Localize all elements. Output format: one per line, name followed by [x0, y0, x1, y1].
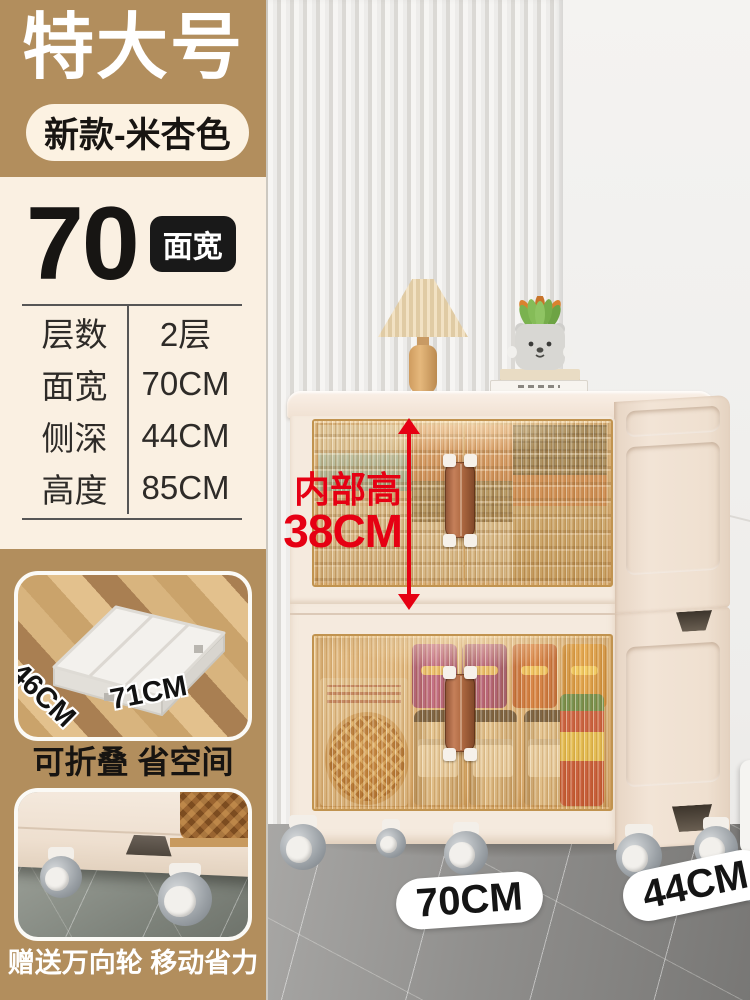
side-recess	[626, 642, 720, 788]
wheel-cap	[164, 886, 195, 917]
width-unit-badge: 面宽	[150, 216, 236, 272]
table-row: 侧深 44CM	[22, 410, 242, 462]
handle-clip	[464, 748, 477, 761]
bear-pot	[507, 323, 573, 370]
cabinet-side-lower	[614, 607, 730, 850]
product-photo: 内部高 38CM 70CM 44CM	[266, 0, 750, 1000]
box-seam	[290, 613, 615, 615]
wood-shelf-edge	[170, 838, 252, 847]
lamp-base	[409, 345, 437, 395]
spec-table: 层数 2层 面宽 70CM 侧深 44CM 高度 85CM	[22, 304, 242, 520]
wheel-cap	[286, 836, 313, 863]
caster-wheel	[280, 824, 326, 870]
width-value: 70	[26, 187, 138, 301]
bear-planter	[504, 296, 576, 374]
table-row: 面宽 70CM	[22, 358, 242, 410]
wheels-photo	[14, 788, 252, 941]
wicker-basket	[180, 788, 252, 840]
cabinet-side-upper	[614, 395, 730, 614]
handle-clip	[464, 454, 477, 467]
spec-label: 高度	[22, 462, 127, 514]
handle-clip	[443, 666, 456, 679]
handle-clip	[443, 454, 456, 467]
caster-wheel	[158, 872, 212, 926]
lamp-shade	[378, 279, 468, 337]
spec-value: 70CM	[127, 358, 242, 410]
inner-height-label: 内部高	[268, 472, 402, 508]
side-handle-notch	[676, 610, 712, 632]
caster-wheel	[444, 831, 488, 875]
width-dimension-pill: 70CM	[394, 870, 544, 931]
wheel-cap	[449, 842, 475, 868]
spec-label: 侧深	[22, 410, 127, 462]
handle-clip	[443, 534, 456, 547]
door-handle-lower	[445, 674, 475, 752]
side-recess	[626, 406, 720, 438]
feature-block: 46CM 71CM 可折叠 省空间 赠送万向轮 移动省力	[0, 549, 266, 1000]
spec-block: 70 面宽 层数 2层 面宽 70CM 侧深 44CM 高度 85CM	[0, 177, 266, 549]
spec-value: 2层	[127, 306, 242, 358]
arrow-down-icon	[398, 594, 420, 610]
handle-clip	[464, 666, 477, 679]
handle-clip	[443, 748, 456, 761]
spec-label: 面宽	[22, 358, 127, 410]
door-handle-upper	[445, 462, 475, 538]
table-row: 层数 2层	[22, 306, 242, 358]
handle-clip	[464, 534, 477, 547]
width-headline: 70 面宽	[26, 187, 236, 301]
table-row: 高度 85CM	[22, 462, 242, 514]
inner-height-annotation: 内部高 38CM	[268, 472, 402, 554]
background-object	[740, 760, 750, 854]
wheel-cap	[622, 845, 649, 872]
variant-badge: 新款-米杏色	[26, 104, 249, 161]
book-spine-text	[518, 385, 560, 388]
inner-height-arrow	[404, 420, 414, 608]
caster-wheel	[40, 856, 82, 898]
info-column: 特大号 新款-米杏色 70 面宽 层数 2层 面宽 70CM 侧深 44CM	[0, 0, 266, 1000]
spec-value: 85CM	[127, 462, 242, 514]
caster-wheel	[376, 828, 406, 858]
wheels-caption: 赠送万向轮 移动省力	[0, 941, 266, 980]
inner-height-value: 38CM	[268, 508, 402, 554]
wall-seam	[728, 515, 750, 528]
wheel-cap	[380, 836, 397, 853]
table-lamp	[378, 279, 468, 397]
folded-box-photo: 46CM 71CM	[14, 571, 252, 741]
spec-value: 44CM	[127, 410, 242, 462]
arrow-shaft	[407, 430, 411, 598]
size-title: 特大号	[22, 2, 244, 96]
product-detail-image: 特大号 新款-米杏色 70 面宽 层数 2层 面宽 70CM 侧深 44CM	[0, 0, 750, 1000]
fold-caption: 可折叠 省空间	[0, 737, 266, 783]
spec-label: 层数	[22, 306, 127, 358]
size-header-block: 特大号 新款-米杏色	[0, 0, 266, 177]
cabinet-notch	[126, 835, 173, 857]
side-recess	[626, 442, 720, 576]
